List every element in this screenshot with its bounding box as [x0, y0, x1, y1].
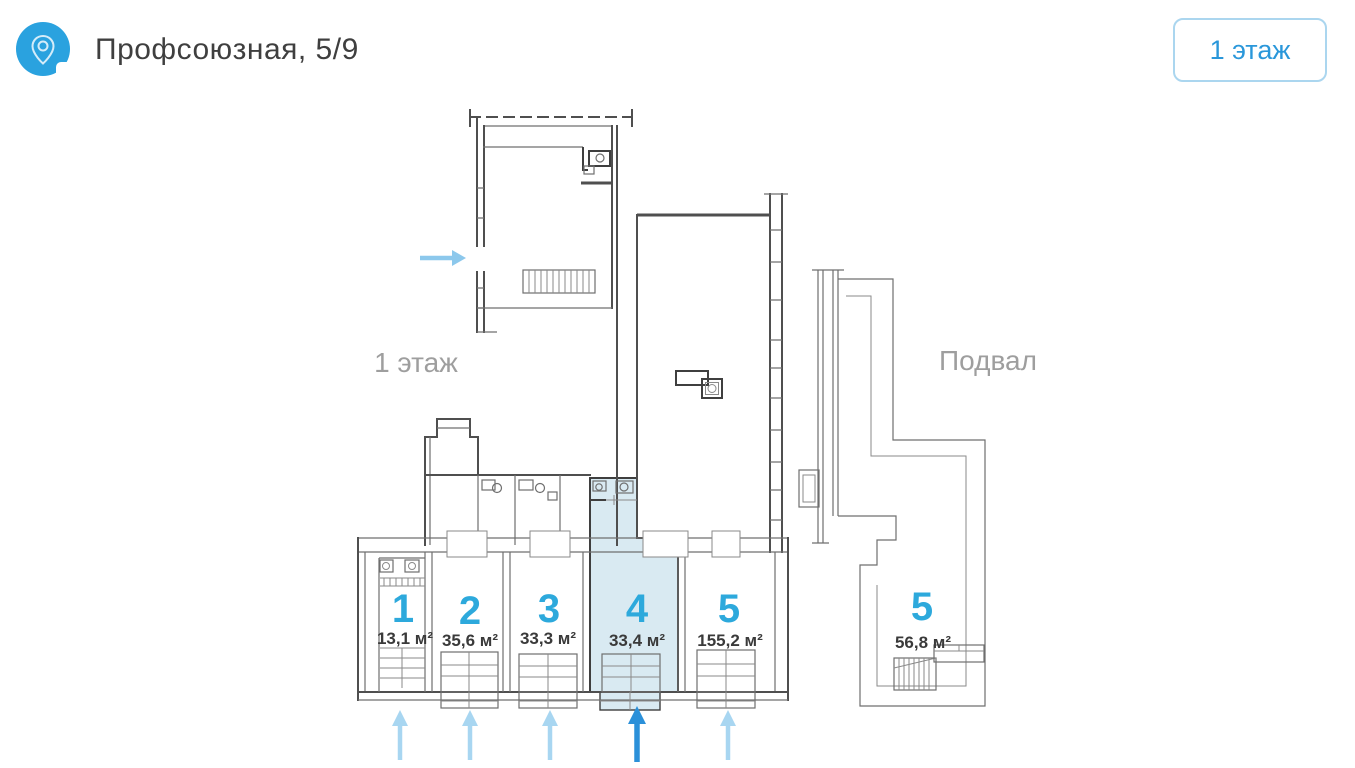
basement-room-5-area: 56,8 м² [895, 633, 951, 652]
entrance-arrow-up [462, 710, 478, 760]
room-3-area: 33,3 м² [520, 629, 576, 648]
floor-plan: 1 этаж Подвал 1 13,1 м² 2 35,6 м² 3 33,3… [0, 0, 1355, 768]
sink-fixture-icon [676, 371, 722, 398]
room-5-area: 155,2 м² [697, 631, 763, 650]
page: Профсоюзная, 5/9 1 этаж [0, 0, 1355, 768]
room-1-area: 13,1 м² [377, 629, 433, 648]
floor-label: 1 этаж [374, 347, 458, 378]
basement-block [799, 270, 985, 706]
room-2-number[interactable]: 2 [459, 589, 481, 633]
toilet-icon [581, 147, 612, 183]
room-5-number[interactable]: 5 [718, 587, 740, 631]
room-3-number[interactable]: 3 [538, 587, 560, 631]
entrance-arrow-up-selected [628, 706, 646, 762]
stairs-icon [697, 650, 755, 708]
entrance-arrow-up [392, 710, 408, 760]
door-opening [530, 531, 570, 557]
door-opening [643, 531, 688, 557]
room-4-number[interactable]: 4 [626, 587, 649, 631]
stairs-icon [523, 270, 595, 293]
room-4-selected-area[interactable] [590, 478, 678, 692]
toilet-icon [482, 480, 557, 500]
entrance-arrow-up [542, 710, 558, 760]
room-2-area: 35,6 м² [442, 631, 498, 650]
room-4-area: 33,4 м² [609, 631, 665, 650]
door-opening [447, 531, 487, 557]
door-opening [712, 531, 740, 557]
basement-room-5-number[interactable]: 5 [911, 585, 933, 629]
central-hall [637, 194, 788, 552]
entrance-arrow-up [720, 710, 736, 760]
room-1-number[interactable]: 1 [392, 587, 414, 631]
entrance-arrow-left [420, 250, 466, 266]
basement-label: Подвал [939, 345, 1037, 376]
